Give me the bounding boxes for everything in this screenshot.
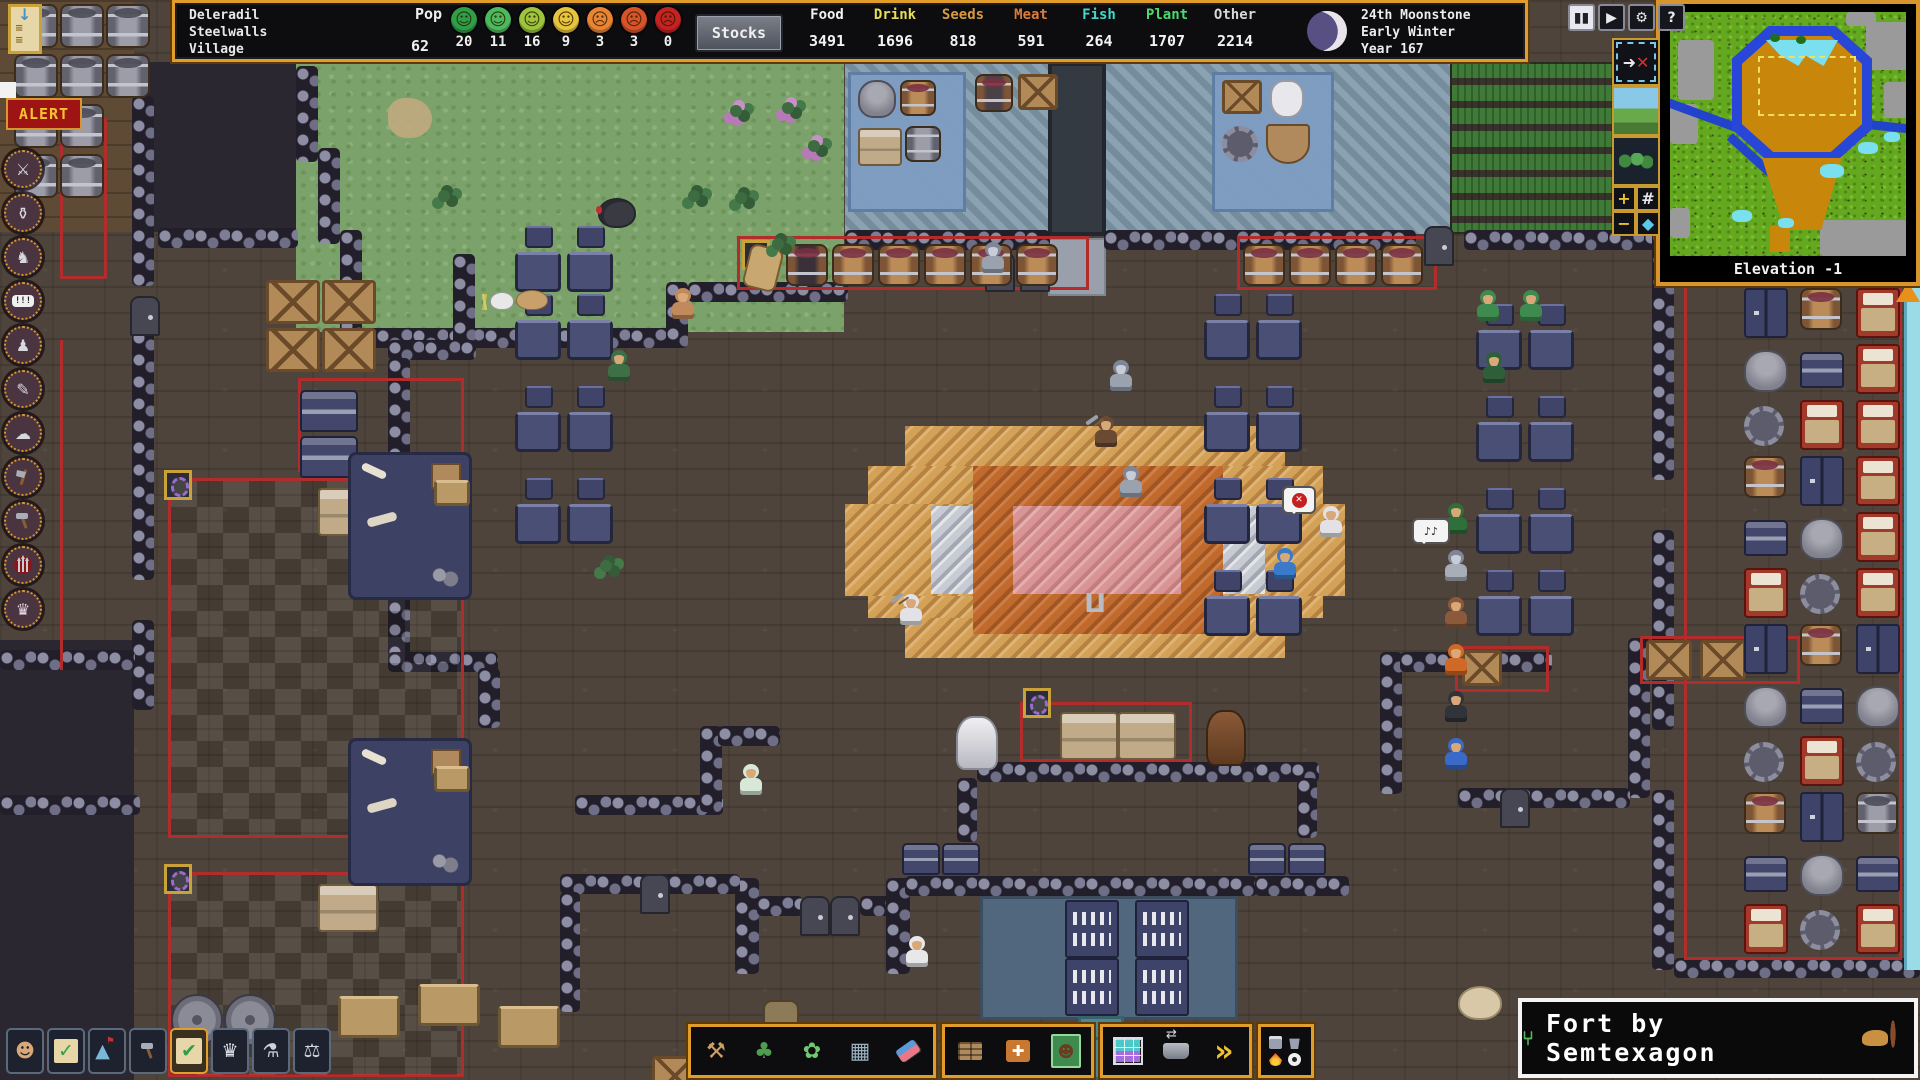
wooden-crate[interactable] [322,280,376,324]
mill-gear[interactable] [1856,742,1896,782]
mood-count: 20 [451,34,477,50]
wheelbarrow[interactable] [1266,124,1310,164]
bed[interactable] [1856,512,1900,562]
dark-tunnel [0,640,134,1080]
follow-cancel-button[interactable]: ➜✕ [1612,38,1660,86]
work-orders-button[interactable]: ✔ [170,1028,208,1074]
eye-mini-icon [1288,1053,1301,1066]
labor-button[interactable] [129,1028,167,1074]
cavern-view-button[interactable] [1612,136,1660,186]
stocks-button[interactable]: Stocks [695,14,783,52]
grass-tuft [478,294,492,310]
window-controls: ▮▮▶⚙? [1568,4,1685,31]
barrel[interactable] [60,4,104,48]
surface-view-button[interactable] [1612,86,1660,136]
chop-button[interactable]: ♣ [742,1030,786,1072]
dwarf-sprite[interactable] [1518,290,1544,324]
crate[interactable] [1700,640,1746,680]
dining-table[interactable] [1476,422,1522,462]
minimap-rock [1866,22,1906,70]
minimap[interactable] [1670,12,1906,256]
military-icon[interactable]: ⚔ [4,150,42,188]
dais-white-tile [931,506,973,594]
stone-wall [132,96,154,286]
minimap-pond [1732,210,1752,222]
stone-wall [388,340,476,360]
dwarf-sprite[interactable] [1481,352,1507,386]
zoom-in-button[interactable]: + [1612,186,1636,211]
barrel[interactable] [14,54,58,98]
minimap-panel[interactable]: Elevation -1 [1656,0,1920,286]
chest[interactable] [1248,843,1286,875]
weather-icon[interactable]: ☁ [4,414,42,452]
resource-label: Other [1201,7,1269,23]
mood-count: 11 [485,34,511,50]
dwarf-soldier-sprite[interactable] [1108,360,1134,394]
craftsdwarf-workshop[interactable] [348,452,472,600]
dining-table[interactable] [515,320,561,360]
chair[interactable] [577,386,605,408]
cabinet[interactable] [1744,624,1788,674]
settings-button[interactable]: ⚙ [1628,4,1655,31]
resource-label: Meat [997,7,1065,23]
dining-table[interactable] [1204,504,1250,544]
jug[interactable] [1270,80,1304,118]
watermark: ⑂ Fort by Semtexagon [1518,998,1918,1078]
center-toolbar: ⚒♣✿▦✚☻» [688,1024,1314,1078]
dwarf-sprite[interactable] [898,594,924,628]
nobles-icon[interactable]: ♛ [4,590,42,628]
tree [730,105,742,117]
dwarf-sprite[interactable] [904,936,930,970]
dining-table[interactable] [1528,330,1574,370]
work-table[interactable] [434,480,470,506]
gather-button[interactable]: ✿ [790,1030,834,1072]
more-button[interactable]: » [1202,1030,1246,1072]
game-date: 24th Moonstone Early Winter Year 167 [1361,7,1471,58]
cloth-bag[interactable] [1744,686,1788,728]
chair[interactable] [1214,386,1242,408]
dining-table[interactable] [567,412,613,452]
resource-counts: Food3491Drink1696Seeds818Meat591Fish264P… [793,7,1269,50]
hauling-button[interactable] [1154,1030,1198,1072]
bed[interactable] [1744,568,1788,618]
help-button[interactable]: ? [1658,4,1685,31]
mood-face-icon: ☹ [587,7,613,33]
shadow-area [134,62,296,232]
dwarf-sprite[interactable] [606,350,632,384]
bed[interactable] [1856,456,1900,506]
minimap-rock [1884,82,1906,118]
resource-value: 818 [929,32,997,50]
justice-button[interactable]: ⚖ [293,1028,331,1074]
crate[interactable] [1018,74,1058,110]
mood-face-icon: ☺ [451,7,477,33]
barrel[interactable] [924,244,966,286]
construction-tools: ✚☻ [942,1024,1094,1078]
resource-label: Drink [861,7,929,23]
turkey [598,198,636,228]
stone-wall [957,778,977,842]
cabinet[interactable] [1856,624,1900,674]
resource-value: 1696 [861,32,929,50]
bookcase[interactable] [1135,958,1189,1016]
depth-water-button[interactable]: ◆ [1636,211,1660,236]
bed[interactable] [1856,904,1900,954]
dining-table[interactable] [1476,596,1522,636]
play-button[interactable]: ▶ [1598,4,1625,31]
resource-value: 1707 [1133,32,1201,50]
stone-wall [718,726,780,746]
barrel[interactable] [1016,244,1058,286]
stockpiles-button[interactable] [1106,1030,1150,1072]
barrel[interactable] [1856,792,1898,834]
barrel[interactable] [1243,244,1285,286]
bed[interactable] [1856,288,1900,338]
smooth-button[interactable]: ▦ [838,1030,882,1072]
dwarf-sprite[interactable] [1443,738,1469,772]
minimap-trees [1770,34,1780,42]
workbench[interactable] [418,984,480,1026]
stone-wall [757,896,803,916]
stone-wall [1255,876,1349,896]
tavern-icon[interactable]: ⚱ [4,194,42,232]
minimap-trees [1796,36,1806,44]
music-speech-bubble: ♪♪ [1412,518,1450,544]
dwarf-sprite[interactable] [738,764,764,798]
workshop-button[interactable]: ✚ [996,1030,1040,1072]
tree [735,192,747,204]
mood-angry: ☹3 [621,7,647,50]
cloth-bag[interactable] [1800,854,1844,896]
storage-bin[interactable] [300,390,358,432]
chair[interactable] [577,478,605,500]
chest[interactable] [1800,688,1844,724]
tree [438,190,450,202]
bed[interactable] [1856,344,1900,394]
zone-gear-plaque[interactable] [164,470,192,500]
mood-face-icon: ☹ [621,7,647,33]
statue[interactable] [956,716,998,770]
minimap-fortress-spur [1770,226,1790,252]
chair[interactable] [577,226,605,248]
creatures-icon[interactable]: ♞ [4,238,42,276]
dining-table[interactable] [515,412,561,452]
door[interactable] [640,874,670,914]
mill-gear[interactable] [1800,910,1840,950]
mood-fine: ☺9 [553,7,579,50]
workbench[interactable] [338,996,400,1038]
chair[interactable] [1486,570,1514,592]
chair[interactable] [1538,396,1566,418]
zoom-out-button[interactable]: − [1612,211,1636,236]
chest[interactable] [902,843,940,875]
dining-table[interactable] [515,252,561,292]
barrel[interactable] [832,244,874,286]
cabinet[interactable] [1800,456,1844,506]
stockpile-border [104,118,107,278]
chair[interactable] [1538,570,1566,592]
chair[interactable] [1214,570,1242,592]
minimap-pond [1858,142,1878,154]
resource-food: Food3491 [793,7,861,50]
barrel[interactable] [786,244,828,286]
records-icon[interactable]: ✎ [4,370,42,408]
barrel[interactable] [106,4,150,48]
barrel[interactable] [900,80,936,116]
bookcase[interactable] [1135,900,1189,958]
dwarf-sprite[interactable] [1443,597,1469,631]
craftsdwarf-workshop[interactable] [348,738,472,886]
tree [808,140,820,152]
chair[interactable] [1538,488,1566,510]
chair[interactable] [1214,478,1242,500]
minimap-viewport[interactable] [1758,56,1856,116]
barrel[interactable] [1800,624,1842,666]
chest[interactable] [1288,843,1326,875]
dig-button[interactable]: ⚒ [694,1030,738,1072]
mood-ecstatic: ☺20 [451,7,477,50]
stockpile-border [60,276,106,279]
workbench[interactable] [498,1006,560,1048]
chest[interactable] [1744,856,1788,892]
woodcutting-icon[interactable] [4,458,42,496]
cabinet[interactable] [1800,792,1844,842]
dwarf-sprite[interactable] [1318,506,1344,540]
turkey-wattle [596,206,602,214]
burrows-button[interactable]: ☻ [1044,1030,1088,1072]
resource-value: 264 [1065,32,1133,50]
barrel[interactable] [905,126,941,162]
bag[interactable] [858,80,896,118]
zone-gear-plaque[interactable] [164,864,192,894]
cloth-bag[interactable] [1800,518,1844,560]
mill-gear[interactable] [1800,574,1840,614]
bookcase[interactable] [1065,958,1119,1016]
barrel[interactable] [1744,456,1786,498]
bed[interactable] [1856,400,1900,450]
building-icon[interactable] [4,502,42,540]
spinning-wheel[interactable] [1222,126,1258,162]
chest[interactable] [1118,712,1176,760]
dining-table[interactable] [1204,412,1250,452]
door[interactable] [1500,788,1530,828]
cloth-bag[interactable] [1856,686,1900,728]
chair[interactable] [1486,488,1514,510]
barrel[interactable] [1744,792,1786,834]
chest[interactable] [318,884,378,932]
chest[interactable] [1060,712,1118,760]
dwarf-soldier-sprite[interactable] [980,242,1006,276]
stone-wall [132,620,154,710]
dining-table[interactable] [1204,320,1250,360]
barrel[interactable] [1800,288,1842,330]
chest[interactable] [1800,352,1844,388]
tree [688,190,700,202]
stone-wall [478,668,500,728]
announcement-log-icon[interactable] [8,4,42,54]
build-button[interactable] [948,1030,992,1072]
pause-button[interactable]: ▮▮ [1568,4,1595,31]
tree [772,238,784,250]
barrel[interactable] [975,74,1013,112]
crate[interactable] [1646,640,1692,680]
top-status-bar: Deleradil Steelwalls Village Pop 62 ☺20☺… [172,0,1528,62]
chair[interactable] [1266,294,1294,316]
chest[interactable] [858,128,902,166]
view-strip: ➜✕+#−◆ [1612,38,1660,236]
dining-table[interactable] [1528,422,1574,462]
mood-unhappy: ☹3 [587,7,613,50]
pop-label: Pop [415,5,442,23]
mood-count: 0 [655,34,681,50]
threats-icon[interactable] [4,546,42,584]
door[interactable] [1424,226,1454,266]
barrel[interactable] [878,244,920,286]
chair[interactable] [577,294,605,316]
barrel[interactable] [60,154,104,198]
dwarf-sprite[interactable] [1272,548,1298,582]
dropped-pants: Π [1080,590,1106,616]
dirt-patch [388,98,432,138]
flame-mini-icon [1269,1053,1282,1066]
barrel[interactable] [1335,244,1377,286]
chair[interactable] [1266,386,1294,408]
resource-label: Fish [1065,7,1133,23]
dining-table[interactable] [567,252,613,292]
minimap-rock [1670,208,1690,238]
citizens-button[interactable]: ☻ [6,1028,44,1074]
places-button[interactable]: ▲⚑ [88,1028,126,1074]
dwarf-sprite[interactable] [1475,290,1501,324]
dwarf-sprite[interactable] [1443,644,1469,678]
resource-other: Other2214 [1201,7,1269,50]
door[interactable] [800,896,830,936]
door[interactable] [130,296,160,336]
chair[interactable] [1486,396,1514,418]
mill-gear[interactable] [1744,406,1784,446]
mood-face-icon: ☺ [485,7,511,33]
bookcase[interactable] [1065,900,1119,958]
trash-mini-icon [1288,1036,1301,1049]
minimap-rock [1678,40,1714,100]
resource-plant: Plant1707 [1133,7,1201,50]
stone-wall [158,228,298,248]
dining-table[interactable] [1256,320,1302,360]
bed[interactable] [1744,904,1788,954]
cabinet[interactable] [1744,288,1788,338]
zone-gear-plaque[interactable] [1023,688,1051,718]
dwarf-soldier-sprite[interactable] [1443,550,1469,584]
reports-icon[interactable]: !!! [4,282,42,320]
stone-wall [1652,530,1674,730]
chair[interactable] [525,386,553,408]
wooden-crate[interactable] [266,280,320,324]
resource-fish: Fish264 [1065,7,1133,50]
dwarf-sprite[interactable] [1443,691,1469,725]
bed[interactable] [1856,568,1900,618]
stone-wall [132,330,154,580]
dining-table[interactable] [1256,596,1302,636]
chair[interactable] [1214,294,1242,316]
logistics-tools: » [1100,1024,1252,1078]
dining-table[interactable] [1256,412,1302,452]
cloth-bag[interactable] [1744,350,1788,392]
dwarf-soldier-sprite[interactable] [1118,466,1144,500]
designation-tools: ⚒♣✿▦ [688,1024,936,1078]
stone-wall [1458,788,1630,808]
dwarf-fortress-screen: Π♪♪✕ Deleradil Steelwalls Village Pop 62… [0,0,1920,1080]
dining-table[interactable] [515,504,561,544]
dining-table[interactable] [1204,596,1250,636]
resource-value: 3491 [793,32,861,50]
barrel[interactable] [60,54,104,98]
resource-value: 591 [997,32,1065,50]
stone-wall [1380,652,1402,794]
erase-button[interactable] [886,1030,930,1072]
plant-sprite: ⑂ [1522,1026,1536,1050]
resource-label: Food [793,7,861,23]
chair[interactable] [525,478,553,500]
bed[interactable] [1800,736,1844,786]
mood-count: 9 [553,34,579,50]
tree [600,560,612,572]
dwarf-sprite[interactable] [670,288,696,322]
dining-table[interactable] [567,504,613,544]
stone-wall [0,795,140,815]
dwarf-sprite[interactable] [1093,416,1119,450]
statues-icon[interactable]: ♟ [4,326,42,364]
stone-wall [1652,790,1674,970]
mood-face-icon: ☹ [655,7,681,33]
objects-button[interactable]: ⚗ [252,1028,290,1074]
crate[interactable] [1222,80,1262,114]
stone-wall [905,876,1257,896]
wooden-crate[interactable] [322,328,376,372]
barrel[interactable] [106,54,150,98]
chest[interactable] [1744,520,1788,556]
stone-wall [318,148,340,244]
elevation-label: Elevation -1 [1660,256,1916,282]
cat [516,290,548,310]
item-commands-button[interactable] [1264,1030,1308,1072]
dining-table[interactable] [1476,514,1522,554]
work-table[interactable] [434,766,470,792]
chair[interactable] [525,226,553,248]
door[interactable] [830,896,860,936]
chest[interactable] [1856,856,1900,892]
barrel[interactable] [1381,244,1423,286]
dining-table[interactable] [1528,596,1574,636]
grid-toggle-button[interactable]: # [1636,186,1660,211]
chest[interactable] [942,843,980,875]
fort-name: Deleradil Steelwalls Village [189,7,267,58]
mill-gear[interactable] [1744,742,1784,782]
mood-count: 3 [587,34,613,50]
wooden-crate[interactable] [266,328,320,372]
mood-happy: ☺11 [485,7,511,50]
statue[interactable] [1206,710,1246,766]
minimap-rock [1820,220,1906,256]
dining-table[interactable] [1528,514,1574,554]
bed[interactable] [1800,400,1844,450]
barrel[interactable] [1289,244,1331,286]
nobles-button[interactable]: ♛ [211,1028,249,1074]
alert-banner[interactable]: ALERT [6,98,82,130]
mood-face-icon: ☺ [519,7,545,33]
stone-wall [560,892,580,1012]
tasks-button[interactable]: ✓ [47,1028,85,1074]
